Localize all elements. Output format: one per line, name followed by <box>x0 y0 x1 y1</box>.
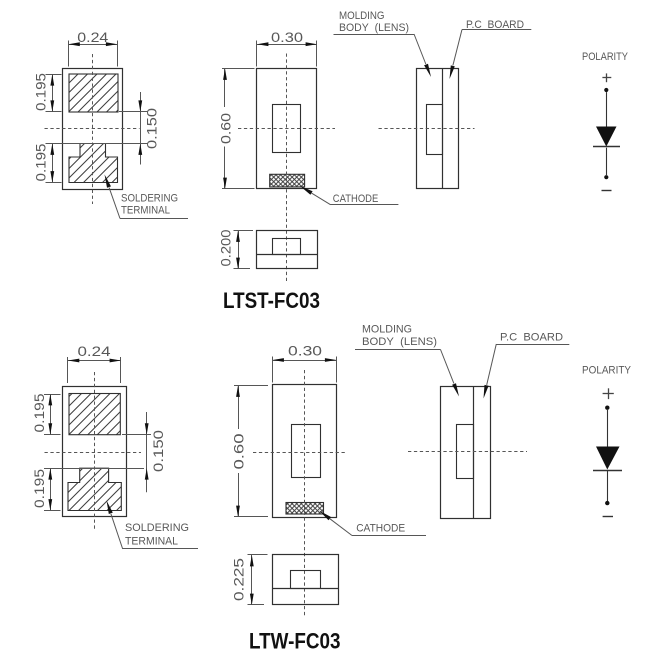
svg-text:BODY (LENS): BODY (LENS) <box>362 336 437 348</box>
svg-text:LTW-FC03: LTW-FC03 <box>249 629 341 654</box>
svg-text:SOLDERING: SOLDERING <box>121 193 178 205</box>
svg-text:CATHODE: CATHODE <box>333 193 379 205</box>
svg-text:MOLDING: MOLDING <box>362 324 412 336</box>
svg-text:P.C BOARD: P.C BOARD <box>500 332 563 344</box>
svg-text:0.24: 0.24 <box>78 343 111 359</box>
svg-text:0.195: 0.195 <box>31 469 47 508</box>
svg-text:0.195: 0.195 <box>31 393 47 432</box>
svg-text:BODY (LENS): BODY (LENS) <box>339 22 409 34</box>
svg-text:0.30: 0.30 <box>288 343 322 359</box>
svg-text:0.60: 0.60 <box>231 433 247 469</box>
svg-text:LTST-FC03: LTST-FC03 <box>223 288 320 313</box>
svg-text:0.225: 0.225 <box>231 558 247 601</box>
svg-text:MOLDING: MOLDING <box>339 10 385 22</box>
svg-text:0.60: 0.60 <box>218 113 234 144</box>
svg-text:P.C BOARD: P.C BOARD <box>466 19 524 31</box>
svg-text:0.200: 0.200 <box>218 229 234 266</box>
svg-text:0.150: 0.150 <box>150 430 166 472</box>
svg-text:0.24: 0.24 <box>77 29 108 45</box>
svg-text:0.150: 0.150 <box>144 108 160 149</box>
svg-text:SOLDERING: SOLDERING <box>125 522 189 534</box>
svg-text:0.195: 0.195 <box>33 73 49 111</box>
svg-text:0.195: 0.195 <box>33 143 49 181</box>
svg-text:CATHODE: CATHODE <box>356 523 405 535</box>
svg-text:0.30: 0.30 <box>271 29 303 45</box>
svg-text:TERMINAL: TERMINAL <box>121 205 170 217</box>
svg-text:POLARITY: POLARITY <box>582 365 632 377</box>
svg-text:POLARITY: POLARITY <box>582 51 629 63</box>
svg-text:TERMINAL: TERMINAL <box>125 536 178 548</box>
